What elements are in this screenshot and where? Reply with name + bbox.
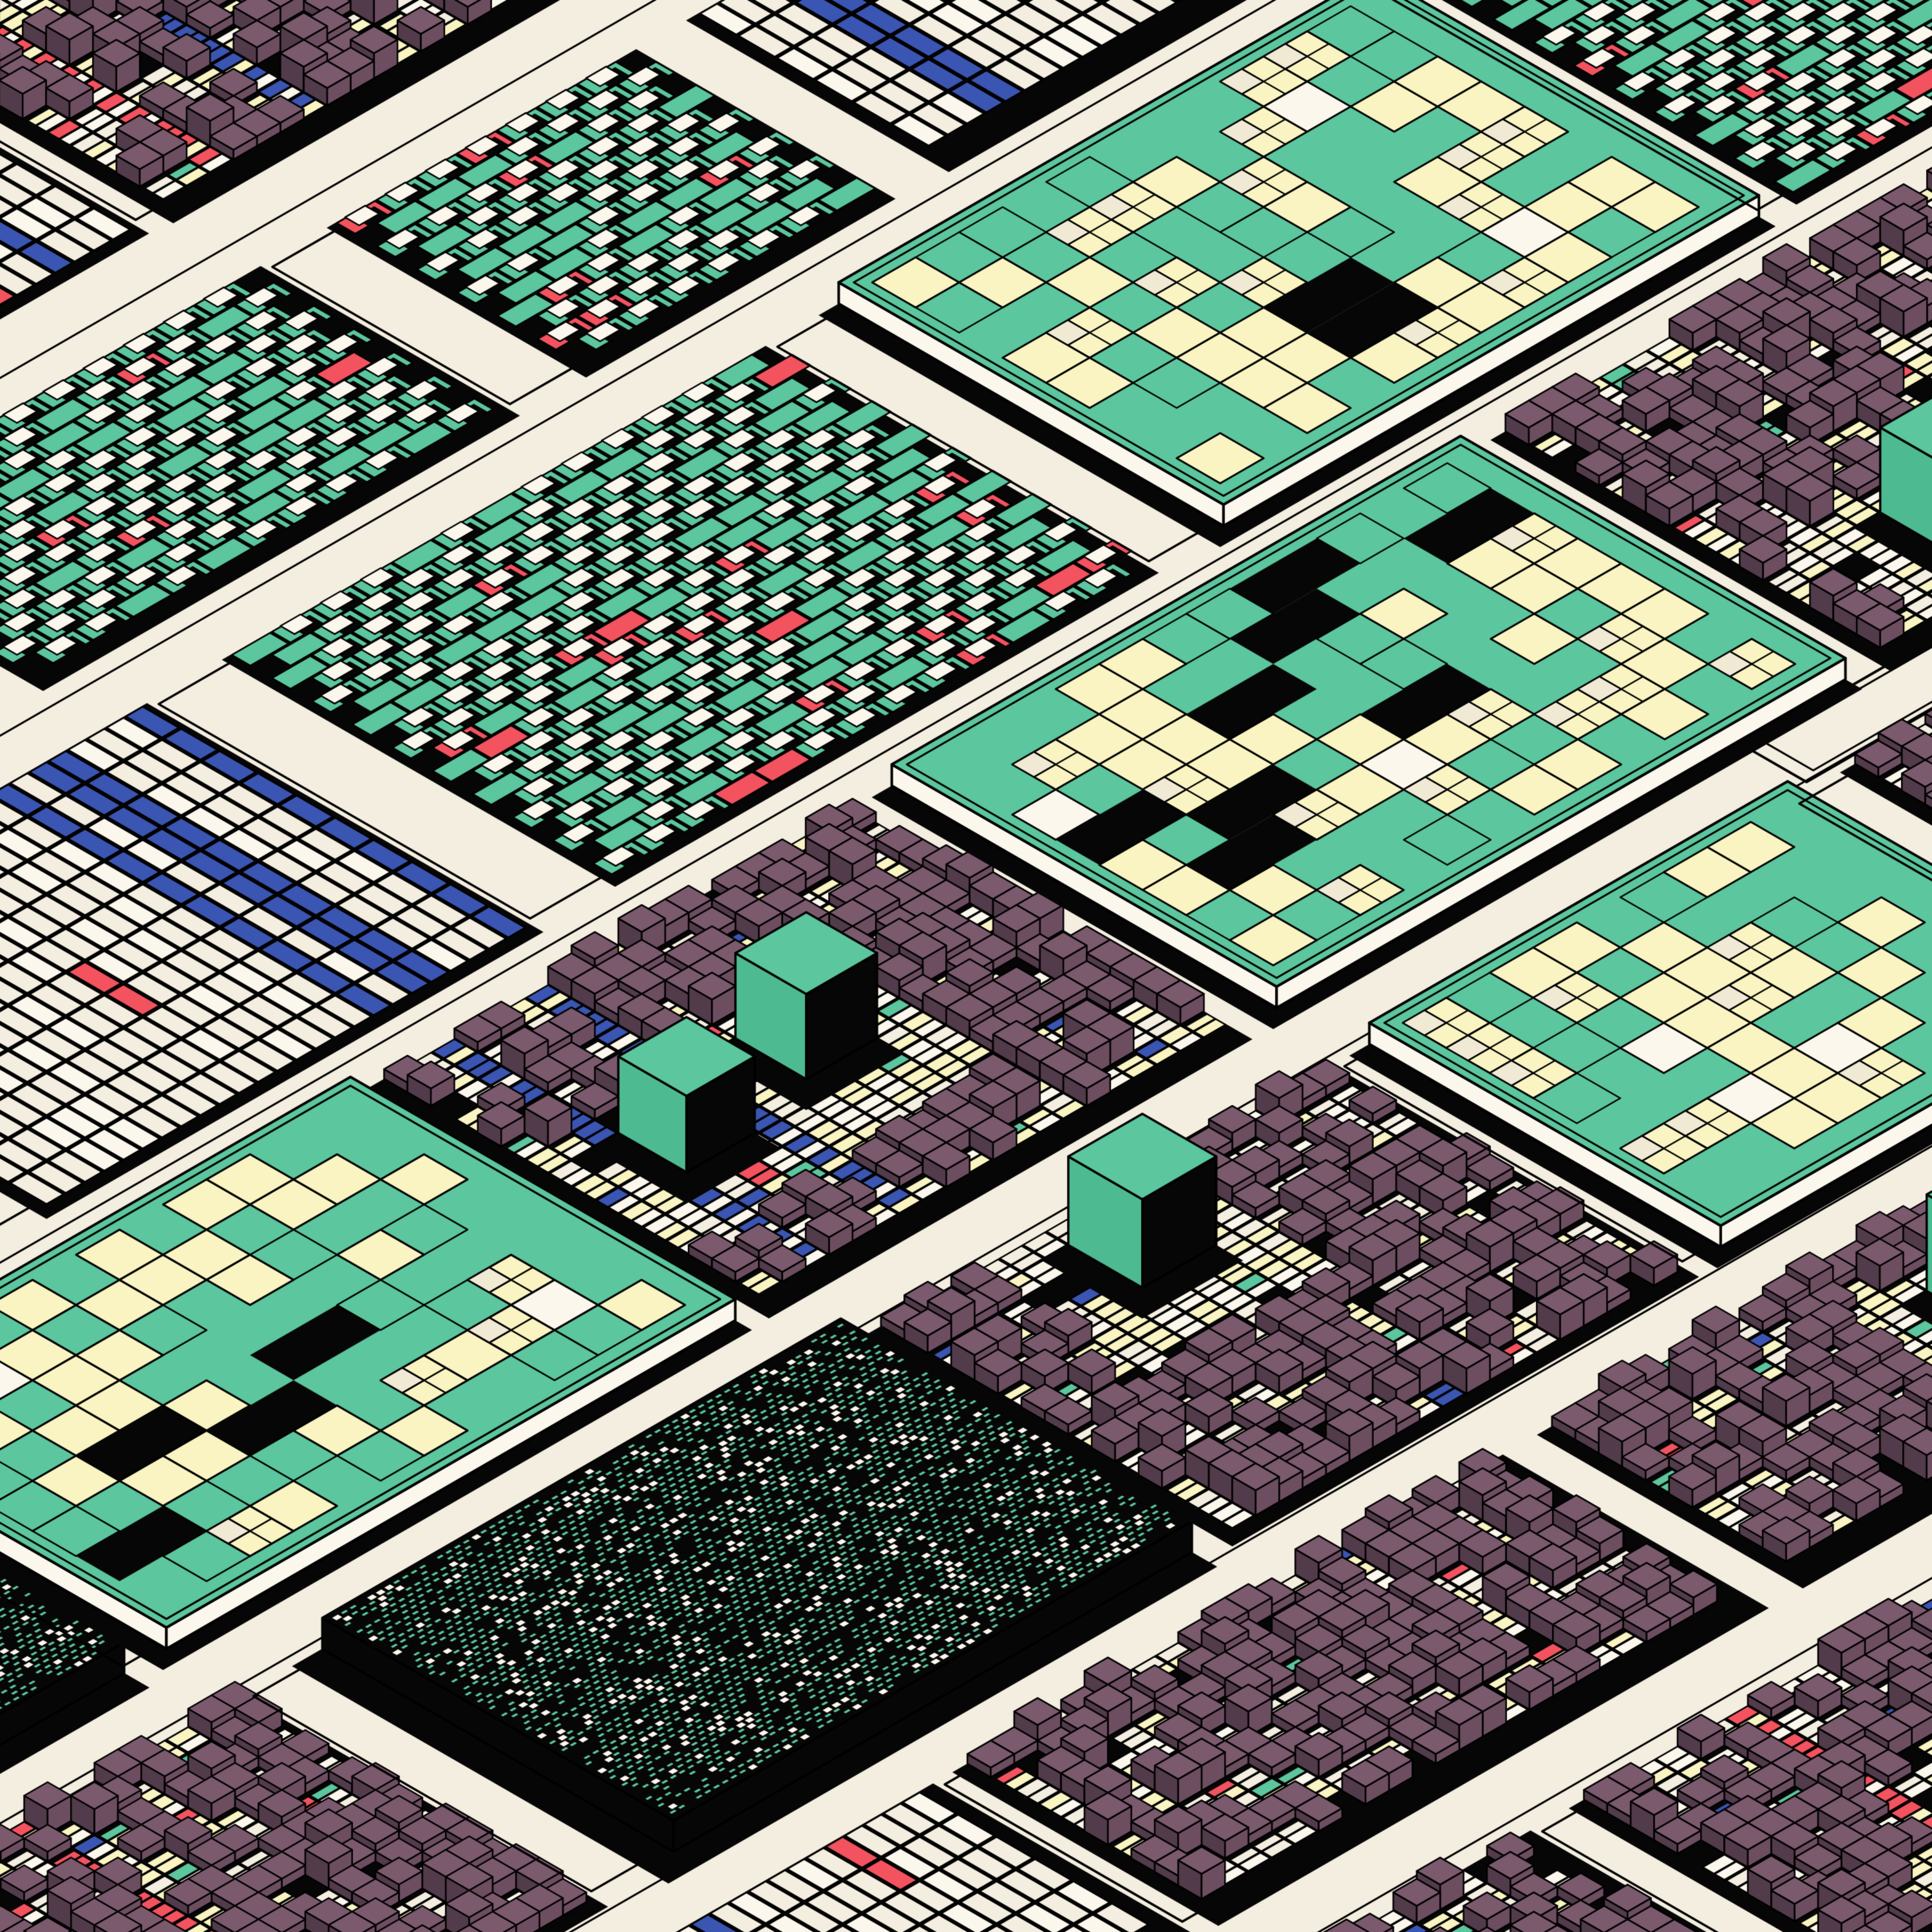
isometric-city-artwork xyxy=(0,0,1932,1932)
isometric-city-canvas xyxy=(0,0,1932,1932)
